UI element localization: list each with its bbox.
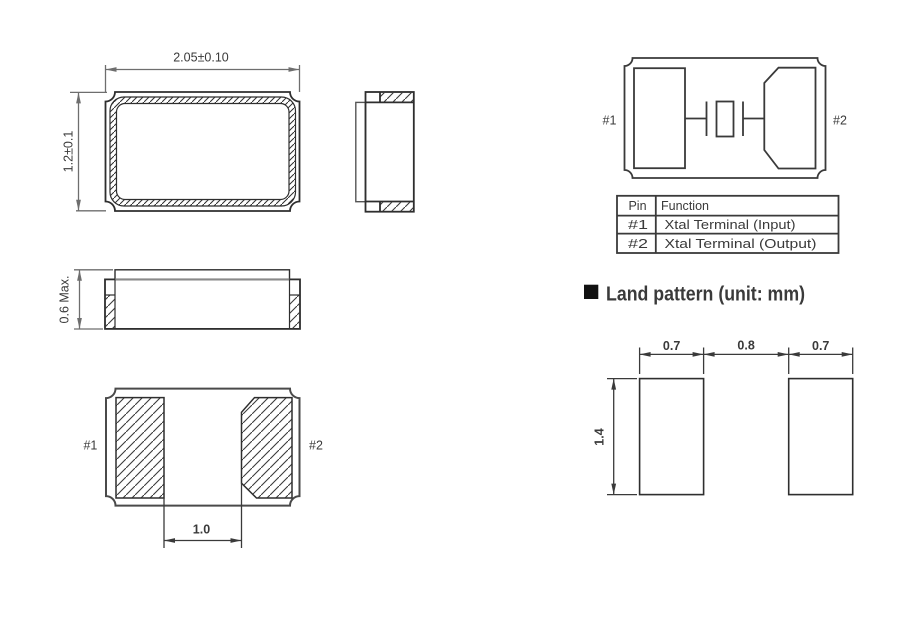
svg-text:2.05±0.10: 2.05±0.10 [173,51,229,65]
svg-text:0.6 Max.: 0.6 Max. [58,276,72,324]
svg-text:Pin: Pin [628,199,646,213]
svg-text:0.7: 0.7 [663,339,680,353]
svg-text:Xtal Terminal (Output): Xtal Terminal (Output) [665,237,817,251]
svg-text:1.2±0.1: 1.2±0.1 [62,131,76,173]
svg-text:#1: #1 [603,114,617,128]
svg-text:Function: Function [661,199,709,213]
svg-text:#1: #1 [628,218,648,232]
svg-text:1.0: 1.0 [193,523,210,537]
svg-text:#2: #2 [309,438,323,452]
svg-text:#2: #2 [628,237,648,251]
svg-text:Xtal Terminal (Input): Xtal Terminal (Input) [665,218,796,232]
svg-text:#2: #2 [833,114,847,128]
svg-text:0.7: 0.7 [812,339,829,353]
svg-text:0.8: 0.8 [737,339,754,353]
svg-text:#1: #1 [83,438,97,452]
svg-text:1.4: 1.4 [593,428,607,445]
svg-text:Land pattern (unit: mm): Land pattern (unit: mm) [606,283,805,305]
